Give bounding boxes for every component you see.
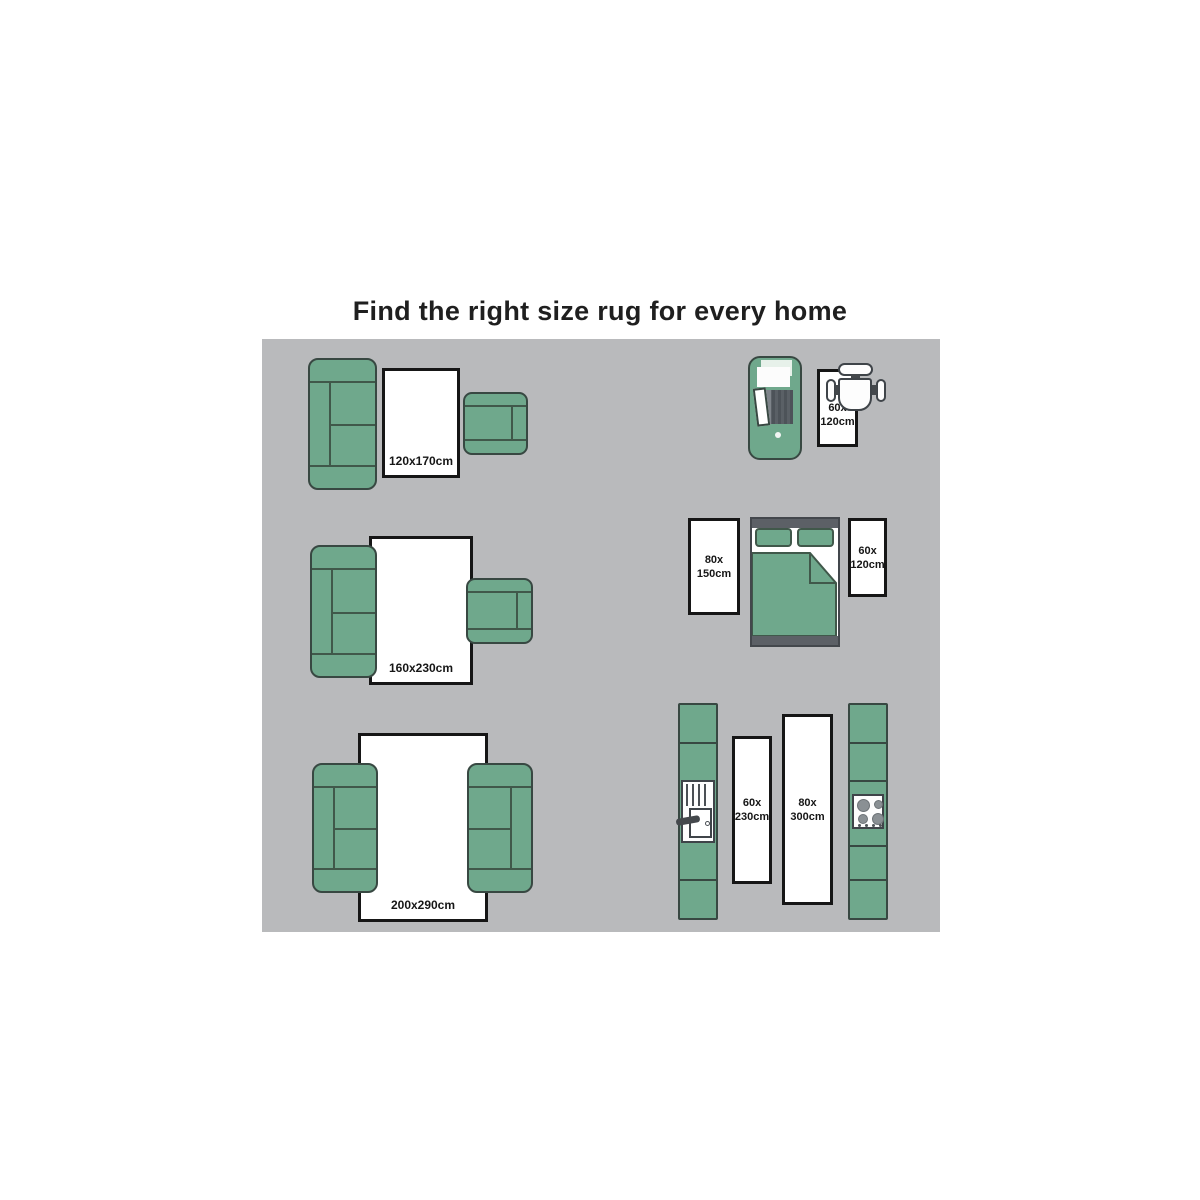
sofa-cushion-seam (331, 612, 375, 614)
rug-60x230: 60x 230cm (732, 736, 772, 884)
door-knob-icon (775, 432, 781, 438)
bed-footboard (752, 636, 838, 645)
kitchen-counter-icon (848, 703, 888, 920)
rug-size-label: 200x290cm (391, 899, 455, 919)
counter-seam (680, 742, 716, 744)
rug-120x170: 120x170cm (382, 368, 460, 478)
page-title: Find the right size rug for every home (0, 296, 1200, 327)
sofa-arm-seam (312, 568, 375, 570)
burner-icon (874, 800, 883, 809)
sofa-top-view-icon (467, 763, 533, 893)
sofa-arm-seam (312, 653, 375, 655)
sofa-top-view-icon (310, 545, 377, 678)
stove-knob-dot (865, 824, 868, 827)
counter-seam (850, 742, 886, 744)
rug-size-label: 120x170cm (389, 455, 453, 475)
armchair-arm-seam (465, 439, 526, 441)
sink-drainer-lines (686, 784, 710, 806)
armchair-top-view-icon (466, 578, 533, 644)
sofa-cushion-seam (469, 828, 512, 830)
bed-headboard (752, 519, 838, 528)
chair-seat (838, 378, 872, 411)
duvet-with-folded-corner (752, 552, 837, 636)
entry-door-top-view-icon (748, 356, 802, 460)
burner-icon (858, 814, 868, 824)
sofa-arm-seam (310, 465, 375, 467)
rug-size-label: 80x 150cm (697, 553, 731, 581)
rug-size-label: 60x 230cm (735, 796, 769, 824)
stove-knob-dot (879, 824, 882, 827)
counter-seam (850, 780, 886, 782)
sink-drain (705, 821, 710, 826)
sofa-cushion-seam (329, 424, 375, 426)
armchair-arm-seam (468, 628, 531, 630)
stove-knob-dot (872, 824, 875, 827)
kitchen-sink-top-view-icon (681, 780, 715, 843)
double-bed-top-view-icon (750, 517, 840, 647)
armchair-top-view-icon (463, 392, 528, 455)
rug-80x150: 80x 150cm (688, 518, 740, 615)
burner-icon (857, 799, 870, 812)
rug-size-label: 80x 300cm (790, 796, 824, 824)
rug-size-label: 160x230cm (389, 662, 453, 682)
sofa-top-view-icon (308, 358, 377, 490)
sofa-arm-seam (469, 868, 531, 870)
sofa-arm-seam (310, 381, 375, 383)
door-mat (757, 367, 790, 387)
armchair-back-seam (511, 407, 513, 439)
sofa-arm-seam (469, 786, 531, 788)
sofa-arm-seam (314, 786, 376, 788)
desk-chair-top-view-icon (826, 363, 886, 411)
sofa-top-view-icon (312, 763, 378, 893)
armchair-arm-seam (465, 405, 526, 407)
stove-knob-dot (858, 824, 861, 827)
counter-seam (850, 879, 886, 881)
pillow-icon (755, 528, 792, 547)
counter-seam (680, 879, 716, 881)
armchair-arm-seam (468, 591, 531, 593)
chair-armrest (876, 379, 886, 402)
rug-size-label: 60x 120cm (850, 544, 884, 572)
armchair-back-seam (516, 593, 518, 628)
chair-arm-joint (872, 385, 877, 395)
sofa-arm-seam (314, 868, 376, 870)
diagram-panel: 120x170cm 60x 120cm (262, 339, 940, 932)
rug-160x230: 160x230cm (369, 536, 473, 685)
stove-cooktop-top-view-icon (852, 794, 884, 829)
kitchen-counter-icon (678, 703, 718, 920)
rug-80x300: 80x 300cm (782, 714, 833, 905)
counter-seam (850, 845, 886, 847)
rug-60x120-bedroom: 60x 120cm (848, 518, 887, 597)
sofa-cushion-seam (333, 828, 376, 830)
pillow-icon (797, 528, 834, 547)
